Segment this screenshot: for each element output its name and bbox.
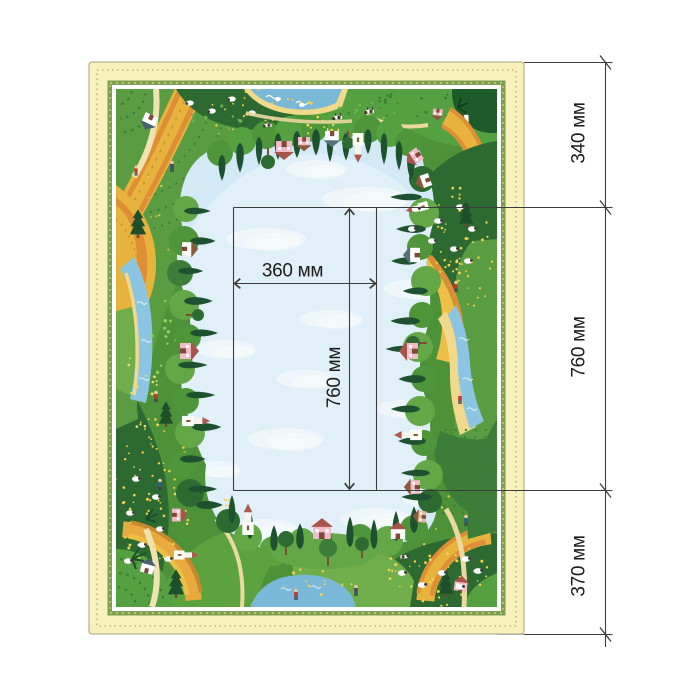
- svg-text:760 мм: 760 мм: [324, 347, 345, 408]
- svg-text:360 мм: 360 мм: [262, 261, 323, 282]
- svg-text:760 мм: 760 мм: [569, 316, 590, 377]
- svg-text:370 мм: 370 мм: [569, 535, 590, 596]
- svg-text:340 мм: 340 мм: [569, 102, 590, 163]
